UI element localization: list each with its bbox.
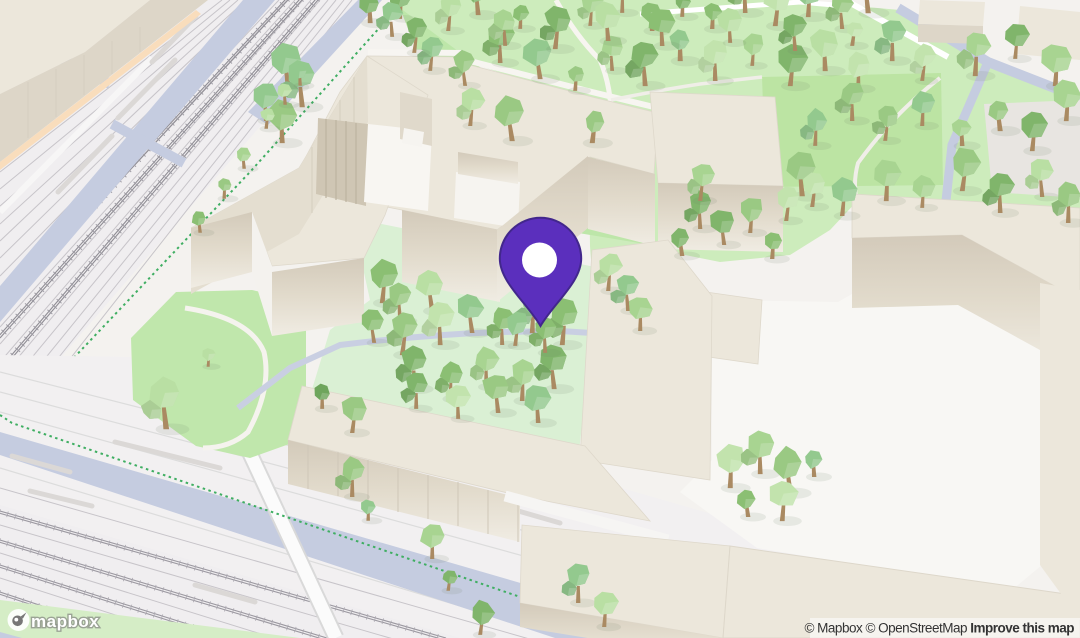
svg-text:mapbox: mapbox <box>31 612 99 631</box>
svg-text:© Mapbox © OpenStreetMap Impro: © Mapbox © OpenStreetMap Improve this ma… <box>804 621 1074 636</box>
